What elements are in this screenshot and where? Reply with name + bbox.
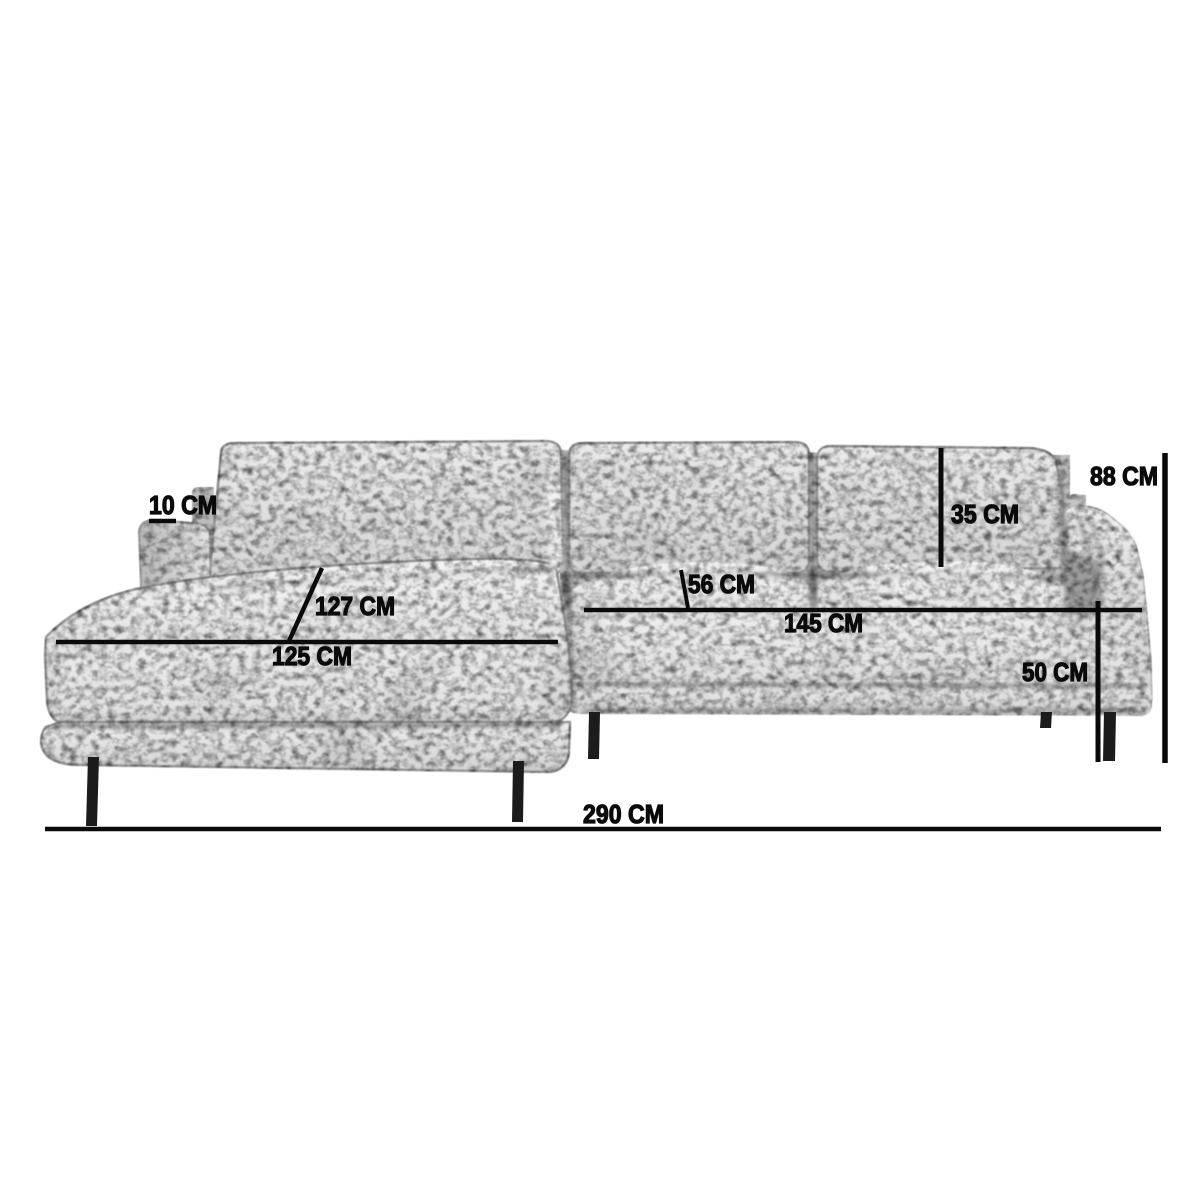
svg-text:145 CM: 145 CM bbox=[784, 608, 863, 638]
svg-text:10 CM: 10 CM bbox=[149, 490, 217, 520]
svg-text:290 CM: 290 CM bbox=[583, 799, 664, 829]
svg-text:127 CM: 127 CM bbox=[315, 591, 395, 621]
svg-text:56 CM: 56 CM bbox=[688, 569, 755, 599]
svg-text:50 CM: 50 CM bbox=[1022, 657, 1088, 687]
svg-text:35 CM: 35 CM bbox=[951, 499, 1019, 529]
svg-text:125 CM: 125 CM bbox=[272, 641, 352, 671]
svg-text:88 CM: 88 CM bbox=[1090, 461, 1158, 491]
